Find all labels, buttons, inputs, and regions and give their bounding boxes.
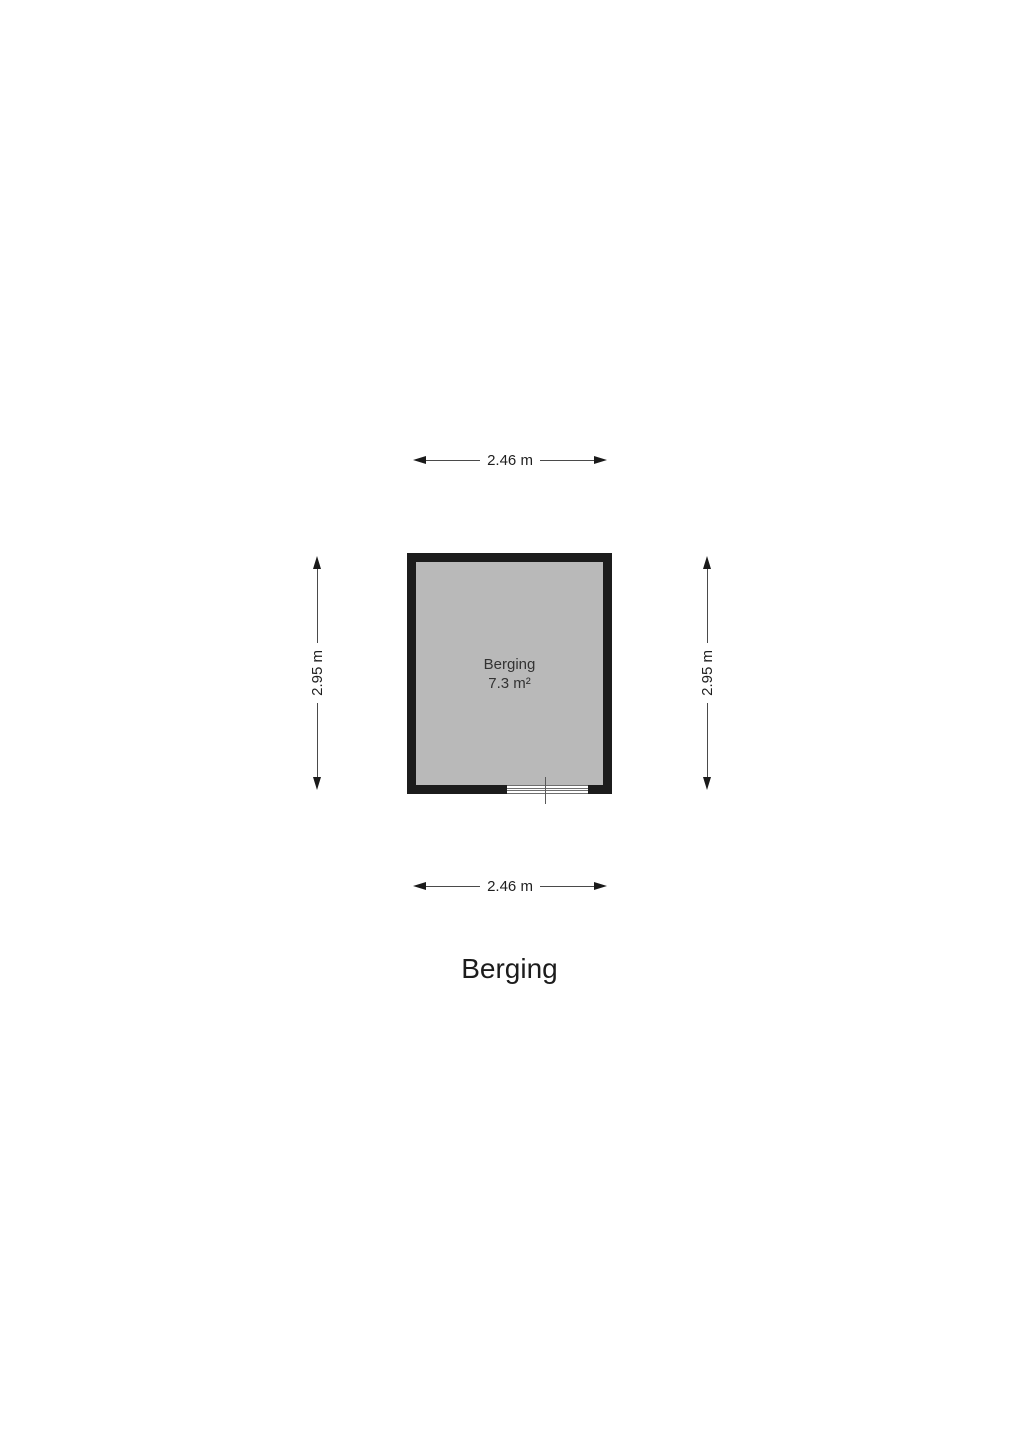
dimension-line xyxy=(426,460,480,461)
room-floor: Berging 7.3 m² xyxy=(416,562,603,785)
plan-title: Berging xyxy=(407,952,612,986)
dimension-line xyxy=(540,460,594,461)
dimension-line xyxy=(707,703,708,777)
arrowhead-up-icon xyxy=(703,556,711,569)
arrowhead-up-icon xyxy=(313,556,321,569)
dimension-bottom: 2.46 m xyxy=(413,878,607,894)
room-area: 7.3 m² xyxy=(484,674,536,693)
dimension-line xyxy=(317,703,318,777)
door-threshold xyxy=(507,785,588,794)
arrowhead-left-icon xyxy=(413,882,426,890)
dimension-line xyxy=(540,886,594,887)
arrowhead-down-icon xyxy=(313,777,321,790)
dimension-line xyxy=(426,886,480,887)
floor-plan: 2.46 m 2.95 m 2.95 m Berging 7.3 m xyxy=(0,0,1018,1440)
dimension-bottom-label: 2.46 m xyxy=(480,878,540,895)
arrowhead-right-icon xyxy=(594,882,607,890)
dimension-left-label: 2.95 m xyxy=(309,643,326,703)
dimension-line xyxy=(707,569,708,643)
dimension-top: 2.46 m xyxy=(413,452,607,468)
arrowhead-right-icon xyxy=(594,456,607,464)
door-center-line xyxy=(545,777,546,804)
dimension-right: 2.95 m xyxy=(699,556,715,790)
room-name: Berging xyxy=(484,655,536,674)
dimension-top-label: 2.46 m xyxy=(480,452,540,469)
dimension-left: 2.95 m xyxy=(309,556,325,790)
arrowhead-down-icon xyxy=(703,777,711,790)
room-walls: Berging 7.3 m² xyxy=(407,553,612,794)
room-label: Berging 7.3 m² xyxy=(484,655,536,693)
arrowhead-left-icon xyxy=(413,456,426,464)
dimension-right-label: 2.95 m xyxy=(699,643,716,703)
floor-plan-page: 2.46 m 2.95 m 2.95 m Berging 7.3 m xyxy=(0,0,1018,1440)
dimension-line xyxy=(317,569,318,643)
